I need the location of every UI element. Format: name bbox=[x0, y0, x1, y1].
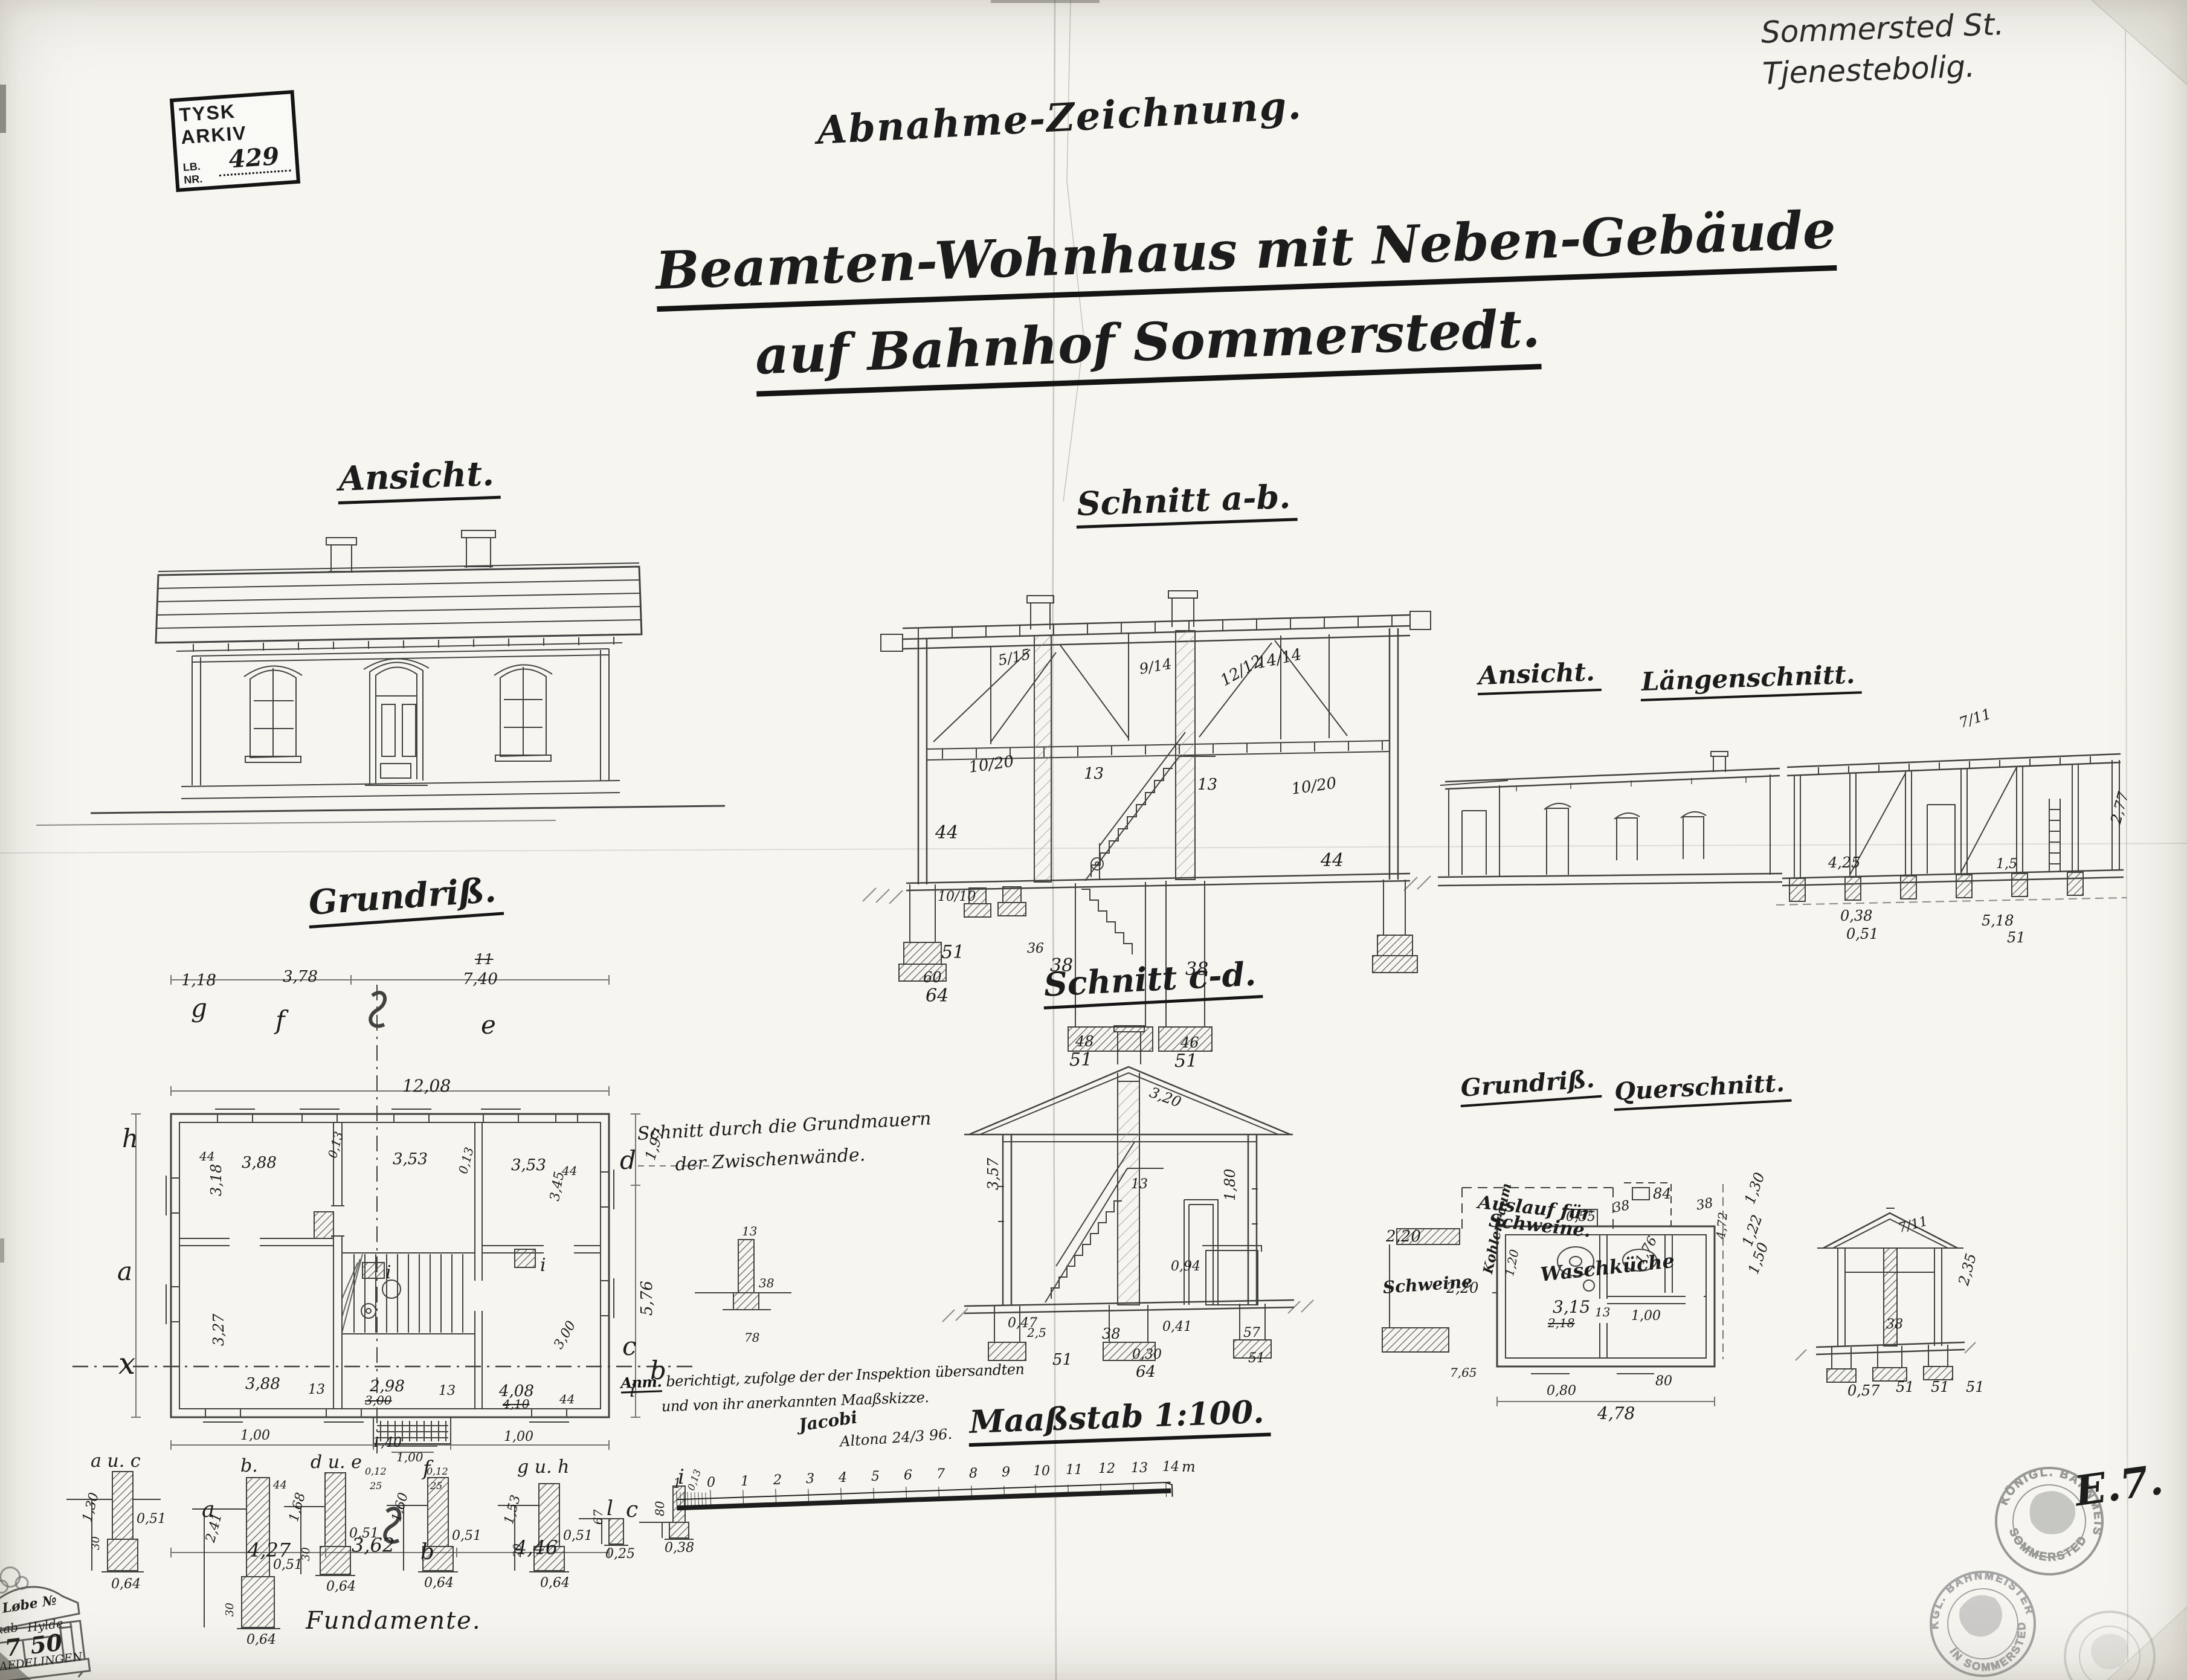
dimension-text: 0,12 bbox=[365, 1467, 387, 1476]
dimension-text: 44 bbox=[935, 824, 958, 842]
scale-tick: 10 bbox=[1033, 1465, 1050, 1478]
dimension-text: 0,25 bbox=[605, 1548, 635, 1561]
dimension-text: 2,77 bbox=[2108, 790, 2131, 825]
scale-unit: m bbox=[1182, 1460, 1196, 1474]
dimension-text: 3,78 bbox=[283, 969, 318, 985]
scale-tick: 1 bbox=[673, 1478, 681, 1491]
dimension-text: 38 bbox=[1050, 957, 1073, 975]
dimension-text: 1,53 bbox=[503, 1494, 523, 1526]
dimension-text: 3,20 bbox=[1148, 1085, 1183, 1110]
dimension-text: 7/11 bbox=[1957, 706, 1993, 730]
dimension-text: 44 bbox=[199, 1150, 214, 1162]
dimension-text: 2,5 bbox=[1027, 1327, 1046, 1339]
dimension-text: 13 bbox=[742, 1225, 757, 1237]
dimension-text: 64 bbox=[1136, 1364, 1156, 1380]
dimension-text: i bbox=[385, 1264, 391, 1282]
dimension-text: 3,00 bbox=[552, 1319, 579, 1351]
dimension-text: 0,51 bbox=[273, 1559, 303, 1572]
dimension-text: 67 bbox=[592, 1510, 604, 1525]
dimension-text: 0,51 bbox=[137, 1513, 166, 1526]
dimension-text: 80 bbox=[654, 1501, 666, 1516]
dimension-text: e bbox=[481, 1012, 496, 1038]
scale-tick: 7 bbox=[936, 1468, 945, 1481]
dimension-text: 0,64 bbox=[540, 1577, 570, 1590]
dimension-text: h bbox=[122, 1126, 138, 1151]
dimension-text: 5/15 bbox=[997, 647, 1032, 668]
dimension-text: 44 bbox=[1321, 852, 1344, 870]
dimension-text: 1,5 bbox=[1996, 858, 2017, 871]
dimension-text: i bbox=[540, 1257, 546, 1275]
dimension-text: 0,38 bbox=[1840, 909, 1872, 923]
dimension-text: 3,15 bbox=[1553, 1299, 1590, 1316]
cabinet-stamp-val1: 7 bbox=[4, 1635, 22, 1660]
scale-tick: 13 bbox=[1131, 1462, 1148, 1475]
scale-tick: 6 bbox=[904, 1469, 912, 1482]
scale-tick: 2 bbox=[773, 1474, 782, 1487]
scale-tick: 4 bbox=[839, 1472, 847, 1485]
dimension-text: 3,88 bbox=[242, 1155, 277, 1171]
dimension-text: 0,51 bbox=[349, 1527, 379, 1540]
dimension-text: 0,41 bbox=[1162, 1321, 1192, 1334]
dimension-text: 3,88 bbox=[245, 1376, 280, 1392]
dimension-text: 2,20 bbox=[1446, 1281, 1478, 1295]
dimension-text: b bbox=[420, 1542, 434, 1563]
dimension-text: 46 bbox=[1180, 1035, 1199, 1050]
dimension-text: 3,53 bbox=[393, 1151, 428, 1167]
dimension-text: 2,18 bbox=[1548, 1317, 1575, 1329]
dimension-text: 3,53 bbox=[511, 1157, 546, 1173]
dimension-text: 13 bbox=[1084, 766, 1104, 782]
dimension-text: 44 bbox=[559, 1393, 575, 1405]
scale-tick: 11 bbox=[1066, 1464, 1083, 1477]
dimension-text: 0,55 bbox=[1566, 1211, 1596, 1224]
scale-tick: 5 bbox=[871, 1470, 880, 1484]
dimension-text: 78 bbox=[744, 1331, 759, 1344]
dimension-text: 51 bbox=[1896, 1380, 1915, 1394]
dimension-text: 0,64 bbox=[424, 1577, 454, 1590]
dimension-text: 51 bbox=[1052, 1352, 1072, 1368]
dimension-text: 0,51 bbox=[452, 1530, 482, 1543]
dimension-text: 10/20 bbox=[968, 754, 1015, 776]
dimension-text: d bbox=[620, 1148, 636, 1173]
dimension-text: 0,13 bbox=[457, 1146, 475, 1175]
dimension-text: 13 bbox=[1595, 1306, 1610, 1318]
dimension-text: a bbox=[117, 1259, 132, 1284]
dimension-text: 0,80 bbox=[1547, 1385, 1576, 1398]
cabinet-stamp-title: Løbe № bbox=[1, 1594, 57, 1615]
dimension-text: 1,40 bbox=[372, 1437, 402, 1450]
dimension-text: 51 bbox=[2007, 930, 2026, 945]
dimension-text: 1,00 bbox=[240, 1429, 270, 1443]
dimension-text: 13 bbox=[1197, 777, 1217, 793]
dimension-text: 57 bbox=[1243, 1327, 1260, 1340]
dimension-text: 80 bbox=[1655, 1375, 1672, 1388]
dimension-text: b. bbox=[240, 1457, 258, 1475]
dimension-text: 36 bbox=[1027, 942, 1044, 956]
dimension-text: 13 bbox=[439, 1385, 456, 1398]
dimension-text: 0,38 bbox=[665, 1542, 694, 1555]
dimension-text: 13 bbox=[1131, 1178, 1148, 1191]
dimension-text: 12,08 bbox=[402, 1078, 451, 1095]
dimension-text: 7,40 bbox=[463, 971, 498, 987]
dimension-text: 1,00 bbox=[1631, 1310, 1661, 1323]
scale-tick: 12 bbox=[1098, 1463, 1115, 1476]
dimension-text: i bbox=[630, 1382, 636, 1400]
scale-tick: 1 bbox=[741, 1475, 749, 1489]
dimension-text: g bbox=[191, 996, 207, 1021]
scale-tick: 0 bbox=[707, 1476, 715, 1490]
dimension-text: d u. e bbox=[311, 1453, 362, 1472]
dimension-text: 0,51 bbox=[563, 1530, 593, 1543]
dimension-text: 44 bbox=[562, 1165, 577, 1177]
dimension-text: 13 bbox=[308, 1383, 325, 1397]
dimension-text: 0,64 bbox=[246, 1633, 276, 1647]
dimension-text: 51 bbox=[1931, 1380, 1950, 1394]
dimension-text: 1,18 bbox=[181, 973, 216, 988]
dimension-text: 10/20 bbox=[1290, 776, 1338, 797]
dimension-text: 11 bbox=[475, 952, 494, 967]
dimension-text: f bbox=[275, 1008, 285, 1033]
dimension-text: c bbox=[626, 1499, 638, 1521]
dimension-text: 48 bbox=[1075, 1034, 1094, 1049]
dimension-text: 25 bbox=[430, 1481, 442, 1491]
dimension-annotations-layer: 5/159/1414/1412/1210/2010/201313444410/1… bbox=[0, 0, 2187, 1680]
dimension-text: 0,94 bbox=[1171, 1260, 1200, 1273]
dimension-text: 0,13 bbox=[326, 1130, 345, 1159]
scale-tick: 9 bbox=[1002, 1466, 1010, 1479]
dimension-text: 51 bbox=[1966, 1380, 1985, 1394]
dimension-text: 3,18 bbox=[209, 1164, 224, 1196]
dimension-text: 7/11 bbox=[1897, 1215, 1929, 1235]
dimension-text: 3,27 bbox=[211, 1314, 226, 1346]
dimension-text: 60 bbox=[923, 970, 942, 985]
scale-tick: 3 bbox=[806, 1473, 814, 1486]
dimension-text: g u. h bbox=[517, 1458, 569, 1476]
dimension-text: 30 bbox=[225, 1603, 236, 1617]
dimension-text: 5,18 bbox=[1982, 913, 2014, 928]
dimension-text: 25 bbox=[370, 1481, 382, 1491]
dimension-text: 38 bbox=[759, 1277, 774, 1289]
dimension-text: 0,30 bbox=[1132, 1348, 1162, 1362]
dimension-text: 4,78 bbox=[1597, 1405, 1635, 1422]
dimension-text: 1,60 bbox=[390, 1492, 411, 1524]
dimension-text: Waschküche bbox=[1539, 1251, 1675, 1284]
dimension-text: 84 bbox=[1653, 1186, 1672, 1201]
dimension-text: 2,98 bbox=[370, 1379, 405, 1394]
dimension-text: 38 bbox=[1695, 1197, 1714, 1213]
dimension-text: 4,25 bbox=[1828, 855, 1860, 870]
dimension-text: 1,80 bbox=[1223, 1169, 1237, 1201]
dimension-text: 30 bbox=[91, 1536, 101, 1550]
dimension-text: b bbox=[650, 1358, 666, 1383]
dimension-text: 30 bbox=[301, 1547, 312, 1561]
dimension-text: 2,20 bbox=[1386, 1229, 1421, 1244]
dimension-text: 64 bbox=[926, 987, 949, 1005]
dimension-text: 0,57 bbox=[1847, 1383, 1879, 1398]
dimension-text: 1,30 bbox=[81, 1492, 101, 1524]
dimension-text: l bbox=[607, 1498, 613, 1519]
dimension-text: 3,57 bbox=[986, 1158, 1000, 1190]
dimension-text: 5,76 bbox=[639, 1281, 655, 1316]
initials-handwritten: E.7. bbox=[2072, 1460, 2166, 1513]
dimension-text: 1,00 bbox=[396, 1451, 424, 1463]
dimension-text: 1,00 bbox=[504, 1431, 533, 1444]
dimension-text: 38 bbox=[1612, 1199, 1631, 1215]
scale-tick: 14 bbox=[1162, 1461, 1179, 1474]
dimension-text: 51 bbox=[941, 944, 964, 962]
dimension-text: 44 bbox=[273, 1480, 287, 1491]
dimension-text: 20 bbox=[512, 1543, 523, 1557]
dimension-text: 0,13 bbox=[686, 1469, 703, 1492]
scanned-drawing-sheet: KÖNIGL. BAHNMEISTEREI SOMMERSTEDT KGL. B… bbox=[0, 0, 2187, 1680]
dimension-text: 1,30 bbox=[1742, 1171, 1767, 1206]
dimension-text: 38 bbox=[1185, 961, 1208, 979]
dimension-text: 51 bbox=[1174, 1052, 1197, 1070]
dimension-text: c bbox=[622, 1334, 637, 1359]
dimension-text: 38 bbox=[1102, 1327, 1121, 1341]
dimension-text: 51 bbox=[1248, 1352, 1265, 1365]
dimension-text: 38 bbox=[1886, 1318, 1903, 1331]
dimension-text: x bbox=[118, 1348, 135, 1379]
dimension-text: 4,10 bbox=[503, 1398, 530, 1410]
dimension-text: 4,72 bbox=[1715, 1212, 1729, 1240]
scale-tick: 8 bbox=[969, 1467, 978, 1481]
dimension-text: 2,35 bbox=[1956, 1252, 1979, 1287]
dimension-text: f bbox=[423, 1458, 431, 1479]
dimension-text: 9/14 bbox=[1138, 657, 1173, 677]
dimension-text: 0,51 bbox=[1846, 927, 1878, 941]
dimension-text: 12/12 bbox=[1218, 653, 1265, 689]
dimension-text: 7,65 bbox=[1450, 1366, 1477, 1379]
dimension-text: 51 bbox=[1069, 1051, 1092, 1069]
dimension-text: 10/10 bbox=[938, 890, 976, 904]
dimension-text: 1,68 bbox=[288, 1492, 308, 1524]
dimension-text: 1,20 bbox=[1503, 1248, 1521, 1277]
dimension-text: 1,97 bbox=[643, 1127, 666, 1162]
dimension-text: 0,64 bbox=[111, 1578, 141, 1591]
dimension-text: 3,00 bbox=[365, 1394, 392, 1406]
dimension-text: a u. c bbox=[91, 1452, 141, 1470]
dimension-text: 0,64 bbox=[326, 1580, 356, 1594]
